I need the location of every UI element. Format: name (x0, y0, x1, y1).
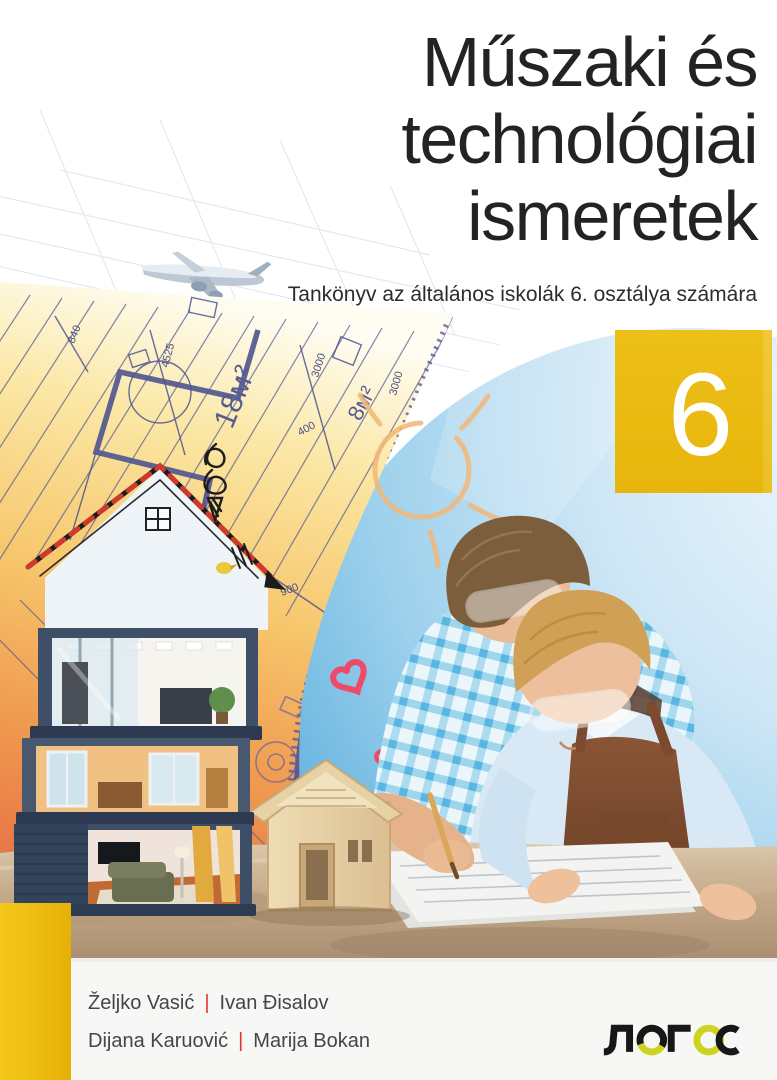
title-line-2: technológiai (401, 101, 757, 178)
gable-window-sketch (146, 508, 170, 530)
grade-badge: 6 (615, 330, 772, 493)
authors-row-1: Željko Vasić|Ivan Đisalov (88, 992, 370, 1015)
bird-figurine (216, 562, 232, 574)
author-name: Dijana Karuović (88, 1030, 228, 1052)
author-separator: | (204, 992, 209, 1014)
author-name: Marija Bokan (253, 1030, 370, 1052)
title-line-1: Műszaki és (401, 24, 757, 101)
publisher-logo: ЛОГОС (599, 1016, 749, 1060)
dollhouse-middle-floor (22, 738, 250, 818)
book-title: Műszaki és technológiai ismeretek (401, 24, 757, 255)
book-subtitle: Tankönyv az általános iskolák 6. osztály… (288, 283, 757, 307)
logos-logo-icon (599, 1016, 749, 1060)
title-line-3: ismeretek (401, 178, 757, 255)
model-window (348, 840, 358, 862)
grade-number: 6 (615, 330, 772, 493)
authors-row-2: Dijana Karuović|Marija Bokan (88, 1030, 370, 1053)
authors-block: Željko Vasić|Ivan Đisalov Dijana Karuovi… (88, 992, 370, 1068)
dollhouse-bottom-floor (14, 824, 252, 908)
accent-bar (0, 903, 71, 1080)
book-cover-page: 4525 3000 3000 840 400 1000 1400 900 18м… (0, 0, 777, 1080)
author-separator: | (238, 1030, 243, 1052)
author-name: Željko Vasić (88, 992, 194, 1014)
dollhouse-top-floor (38, 628, 258, 732)
author-name: Ivan Đisalov (220, 992, 329, 1014)
